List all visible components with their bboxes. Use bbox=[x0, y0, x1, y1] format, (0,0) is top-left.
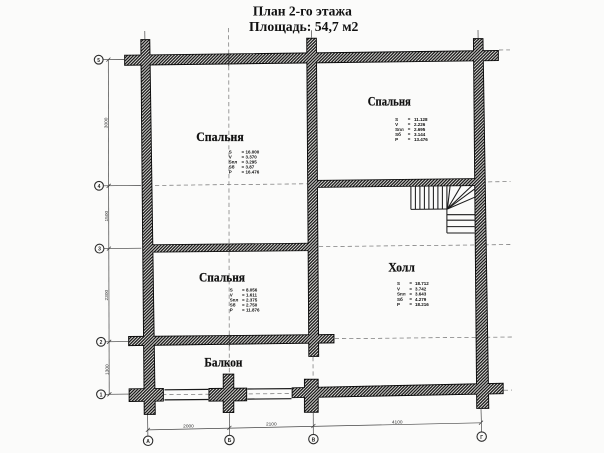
svg-text:13.476: 13.476 bbox=[414, 137, 428, 142]
svg-text:2100: 2100 bbox=[266, 422, 277, 428]
svg-text:11.876: 11.876 bbox=[246, 308, 260, 313]
svg-text:2000: 2000 bbox=[183, 423, 194, 429]
svg-text:3000: 3000 bbox=[104, 117, 110, 128]
svg-text:P: P bbox=[395, 137, 398, 142]
svg-text:=: = bbox=[409, 302, 412, 307]
svg-text:Спальня: Спальня bbox=[368, 94, 411, 109]
svg-text:P: P bbox=[229, 170, 232, 175]
svg-text:Спальня: Спальня bbox=[196, 129, 244, 144]
svg-text:Холл: Холл bbox=[388, 260, 415, 275]
svg-text:2: 2 bbox=[100, 340, 103, 346]
svg-text:В: В bbox=[312, 437, 316, 443]
svg-text:P: P bbox=[230, 308, 233, 313]
svg-text:Г: Г bbox=[480, 435, 483, 441]
svg-text:=: = bbox=[242, 308, 245, 313]
svg-text:3: 3 bbox=[98, 247, 101, 253]
svg-text:18.216: 18.216 bbox=[415, 302, 429, 307]
svg-text:1300: 1300 bbox=[104, 364, 110, 375]
svg-text:5: 5 bbox=[97, 58, 100, 64]
svg-text:План 2-го этажа: План 2-го этажа bbox=[253, 3, 352, 18]
svg-text:1: 1 bbox=[100, 392, 103, 398]
svg-text:Б: Б bbox=[228, 438, 232, 444]
svg-text:1500: 1500 bbox=[104, 210, 110, 221]
svg-text:=: = bbox=[408, 137, 411, 142]
svg-text:4: 4 bbox=[98, 184, 101, 190]
svg-text:16.476: 16.476 bbox=[246, 170, 260, 175]
svg-text:Sб: Sб bbox=[229, 164, 235, 170]
svg-text:А: А bbox=[146, 439, 150, 445]
svg-text:4100: 4100 bbox=[392, 419, 403, 425]
svg-text:2300: 2300 bbox=[104, 289, 110, 300]
svg-text:Балкон: Балкон bbox=[204, 355, 242, 370]
svg-text:=: = bbox=[242, 170, 245, 175]
svg-text:Спальня: Спальня bbox=[199, 270, 245, 285]
svg-text:P: P bbox=[397, 302, 400, 307]
svg-text:Площадь: 54,7 м2: Площадь: 54,7 м2 bbox=[249, 19, 359, 34]
svg-text:Sб: Sб bbox=[397, 296, 403, 302]
